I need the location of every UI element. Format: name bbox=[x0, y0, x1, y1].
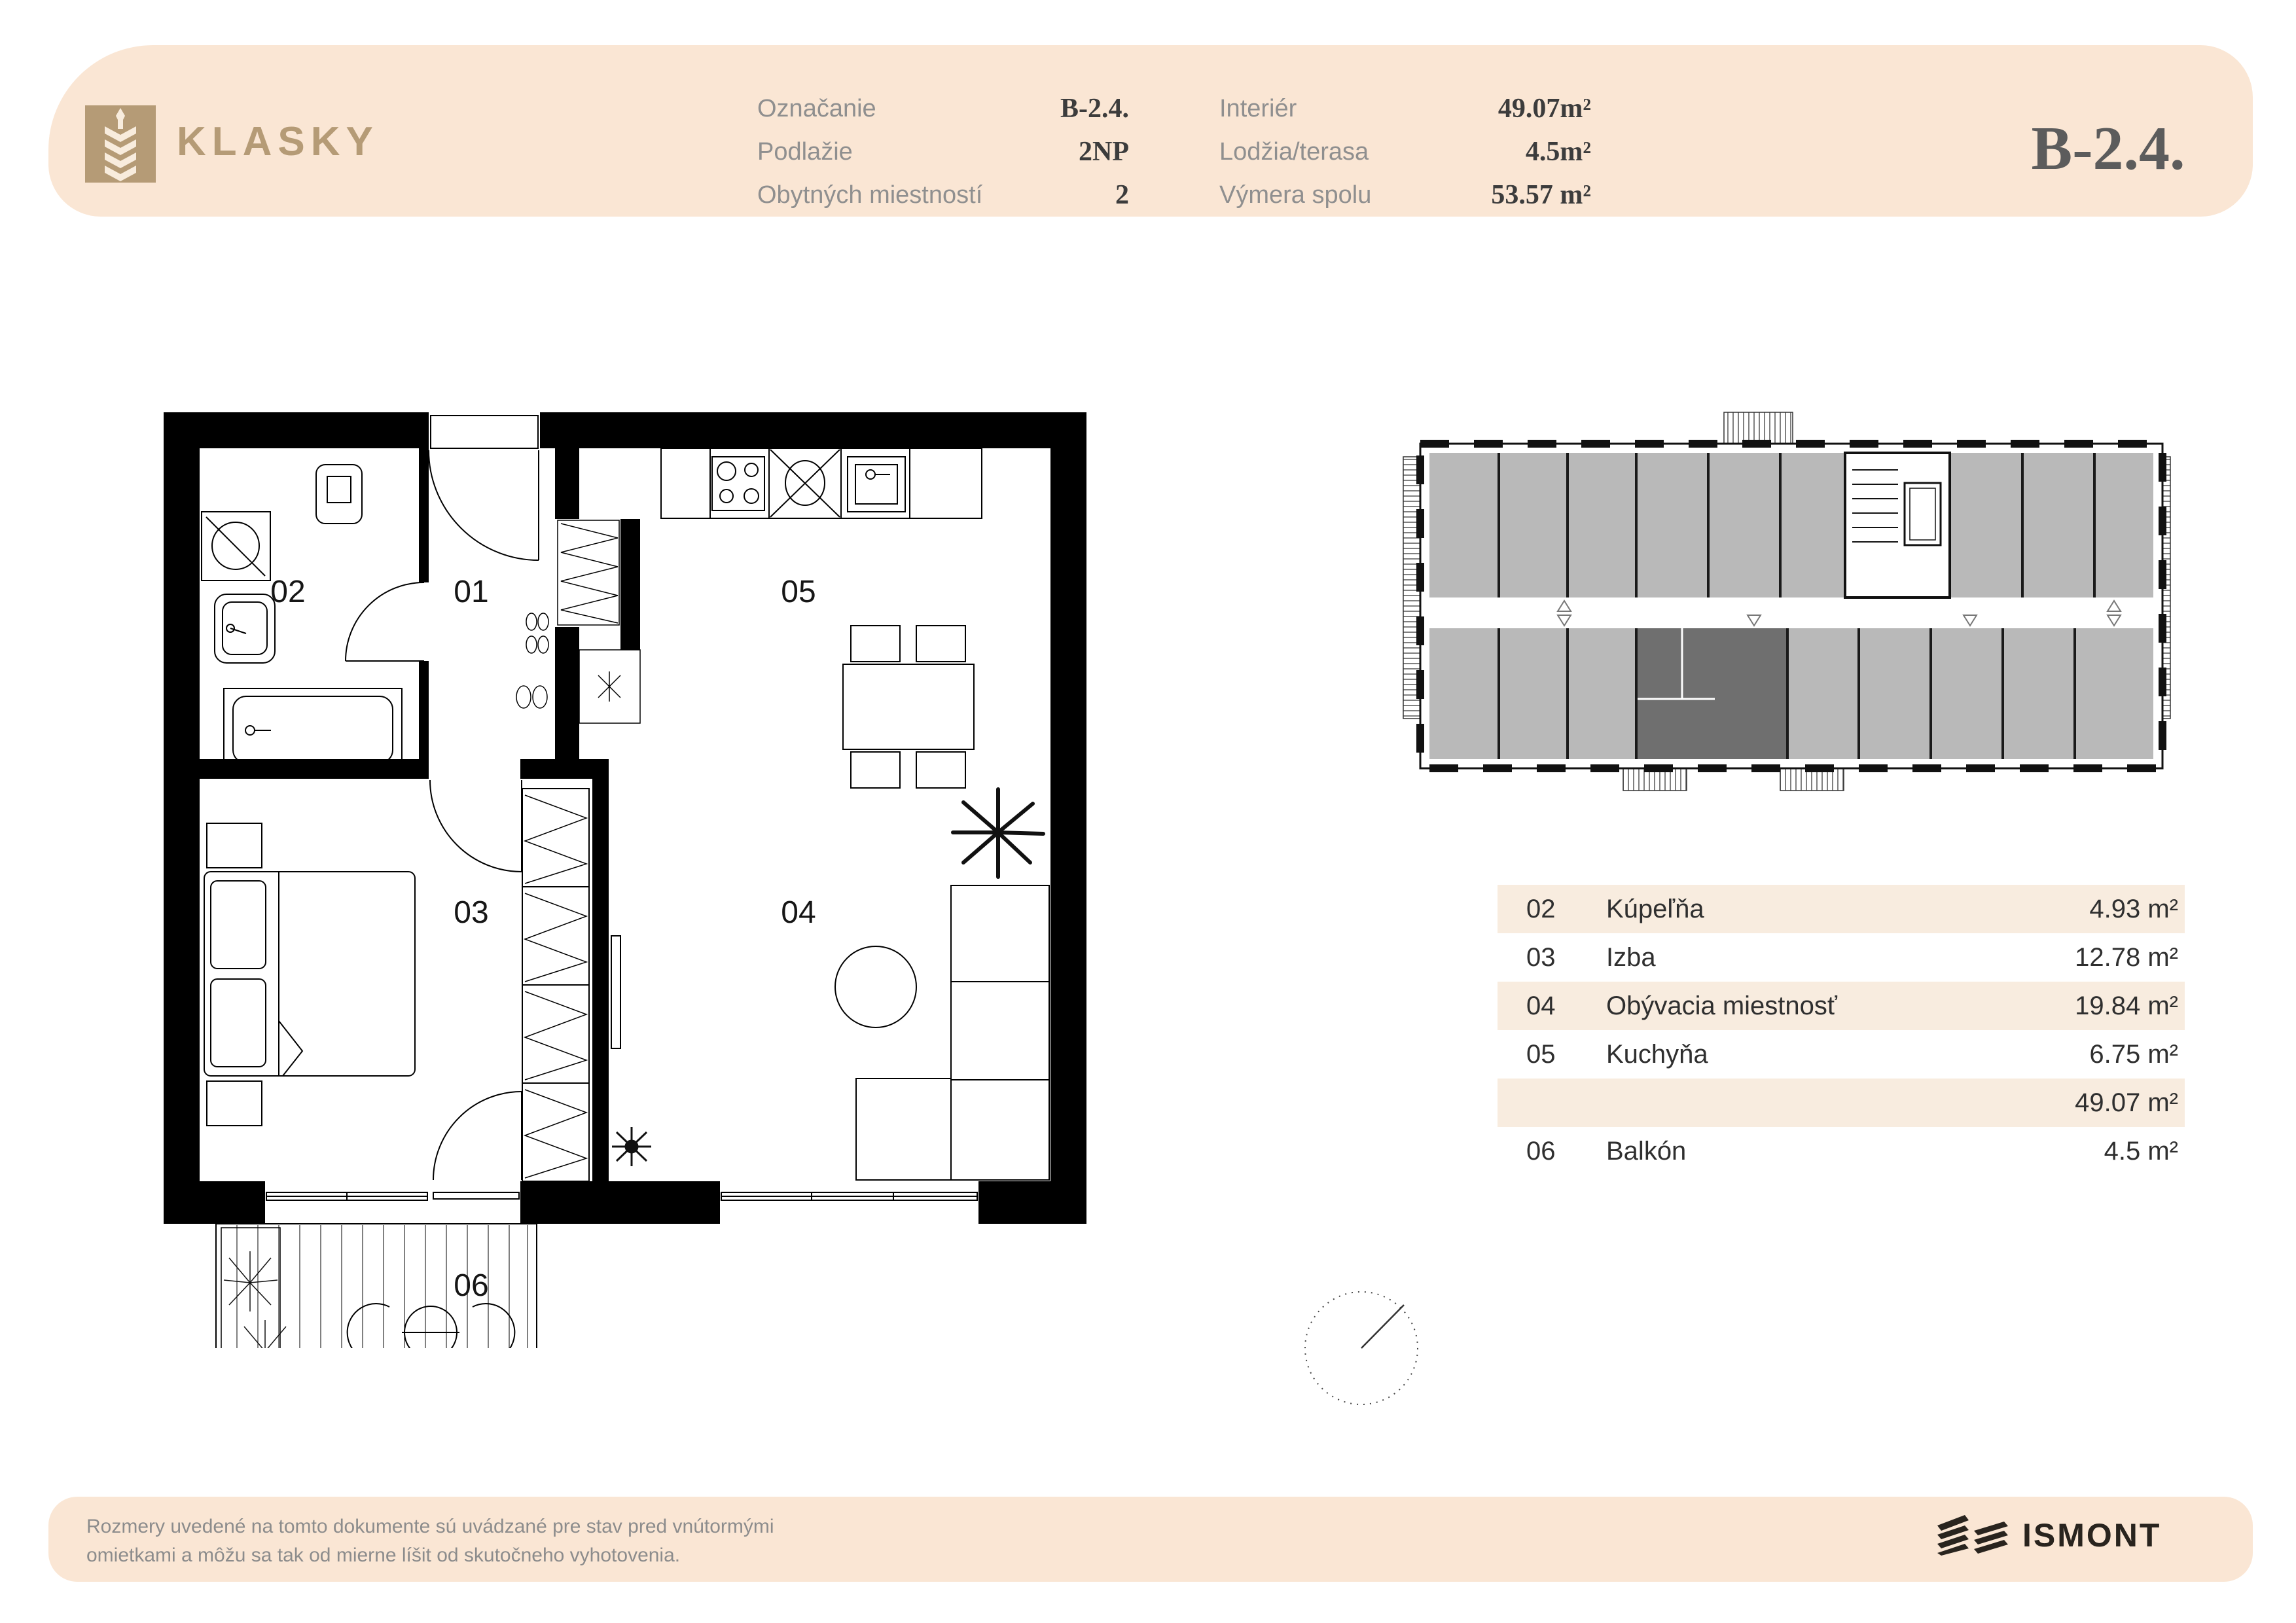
balcony-table-icon bbox=[404, 1306, 457, 1348]
room-area: 19.84 m² bbox=[2075, 991, 2185, 1021]
building-overview bbox=[1401, 404, 2173, 797]
room-label-01: 01 bbox=[454, 575, 488, 609]
compass bbox=[1296, 1281, 1427, 1412]
highlighted-unit bbox=[1636, 628, 1787, 759]
field-podlazie: Podlažie 2NP bbox=[757, 130, 1129, 173]
room-label-02: 02 bbox=[270, 575, 305, 609]
field-value: 53.57 m² bbox=[1491, 179, 1591, 211]
field-label: Označanie bbox=[757, 95, 876, 123]
room-name: Kúpeľňa bbox=[1606, 895, 2089, 924]
klasky-logo bbox=[85, 105, 156, 183]
field-label: Lodžia/terasa bbox=[1219, 138, 1369, 166]
table-row: 04 Obývacia miestnosť 19.84 m² bbox=[1498, 982, 2185, 1030]
wardrobe-hatch bbox=[525, 795, 586, 1178]
field-interier: Interiér 49.07m² bbox=[1219, 87, 1591, 130]
toilet-tank bbox=[327, 476, 351, 503]
page: KLASKY Označanie B-2.4. Podlažie 2NP Oby… bbox=[0, 0, 2296, 1623]
field-value: 49.07m² bbox=[1498, 93, 1591, 124]
coffee-table-icon bbox=[835, 946, 916, 1027]
balcony-chair-icon bbox=[473, 1304, 514, 1348]
room-number: 05 bbox=[1498, 1040, 1606, 1069]
room-area: 4.93 m² bbox=[2089, 895, 2185, 924]
field-oznacanie: Označanie B-2.4. bbox=[757, 87, 1129, 130]
room-number: 04 bbox=[1498, 991, 1606, 1021]
room-label-06: 06 bbox=[454, 1268, 488, 1303]
small-plant-icon bbox=[612, 1127, 651, 1166]
total-interior-area: 49.07 m² bbox=[2075, 1088, 2185, 1118]
tv-icon bbox=[611, 936, 620, 1048]
units-bottom-band bbox=[1429, 628, 2153, 759]
ismont-buildings-icon bbox=[1936, 1514, 2013, 1557]
field-label: Obytných miestností bbox=[757, 181, 982, 209]
plant-icon bbox=[953, 789, 1043, 877]
unit-code: B-2.4. bbox=[1977, 113, 2239, 184]
bathtub-icon bbox=[224, 688, 402, 771]
header-band: KLASKY Označanie B-2.4. Podlažie 2NP Oby… bbox=[48, 45, 2253, 217]
room-area: 12.78 m² bbox=[2075, 943, 2185, 972]
entrance-niche bbox=[431, 416, 538, 448]
room-name: Izba bbox=[1606, 943, 2075, 972]
disclaimer-line1: Rozmery uvedené na tomto dokumente sú uv… bbox=[86, 1512, 774, 1541]
field-vymera-spolu: Výmera spolu 53.57 m² bbox=[1219, 173, 1591, 217]
room-number: 02 bbox=[1498, 895, 1606, 924]
units-top-band bbox=[1429, 453, 2153, 597]
field-label: Podlažie bbox=[757, 138, 853, 166]
room-area-table: 02 Kúpeľňa 4.93 m² 03 Izba 12.78 m² 04 O… bbox=[1498, 885, 2185, 1175]
floorplan-drawing: 02 01 05 03 04 06 bbox=[131, 366, 1113, 1348]
table-row: 06 Balkón 4.5 m² bbox=[1498, 1127, 2185, 1175]
table-row: 05 Kuchyňa 6.75 m² bbox=[1498, 1030, 2185, 1079]
room-label-03: 03 bbox=[454, 895, 488, 930]
room-label-05: 05 bbox=[781, 575, 816, 609]
wheat-icon bbox=[85, 105, 156, 183]
field-value: 2NP bbox=[1079, 136, 1129, 168]
planter-box bbox=[221, 1228, 280, 1348]
brand-name: KLASKY bbox=[177, 118, 379, 165]
stair-core bbox=[1845, 453, 1950, 597]
dining-table-icon bbox=[843, 664, 974, 749]
room-area: 4.5 m² bbox=[2104, 1137, 2185, 1166]
room-label-04: 04 bbox=[781, 895, 816, 930]
room-name: Kuchyňa bbox=[1606, 1040, 2089, 1069]
bedroom-furniture bbox=[204, 789, 589, 1181]
living-room-furniture bbox=[611, 885, 1049, 1180]
sofa-icon bbox=[951, 885, 1049, 1180]
table-row: 03 Izba 12.78 m² bbox=[1498, 933, 2185, 982]
disclaimer-line2: omietkami a môžu sa tak od mierne líšit … bbox=[86, 1541, 774, 1570]
header-fields-left: Označanie B-2.4. Podlažie 2NP Obytných m… bbox=[757, 87, 1129, 217]
apartment-floorplan: 02 01 05 03 04 06 bbox=[131, 366, 1113, 1348]
field-value: 4.5m² bbox=[1526, 136, 1591, 168]
bathroom-fixtures bbox=[202, 465, 402, 771]
nightstand-icon bbox=[207, 1081, 262, 1126]
ismont-logo-text: ISMONT bbox=[2022, 1516, 2161, 1554]
room-name: Obývacia miestnosť bbox=[1606, 991, 2075, 1021]
field-value: 2 bbox=[1115, 179, 1129, 211]
field-lodzia-terasa: Lodžia/terasa 4.5m² bbox=[1219, 130, 1591, 173]
building-overview-drawing bbox=[1401, 404, 2173, 797]
toilet-icon bbox=[316, 465, 362, 524]
ismont-logo: ISMONT bbox=[1936, 1514, 2161, 1557]
nightstand-icon bbox=[207, 823, 262, 868]
field-label: Výmera spolu bbox=[1219, 181, 1371, 209]
field-value: B-2.4. bbox=[1060, 93, 1129, 124]
table-row-total: 49.07 m² bbox=[1498, 1079, 2185, 1127]
room-name: Balkón bbox=[1606, 1137, 2104, 1166]
disclaimer-text: Rozmery uvedené na tomto dokumente sú uv… bbox=[86, 1512, 774, 1570]
room-area: 6.75 m² bbox=[2089, 1040, 2185, 1069]
field-label: Interiér bbox=[1219, 95, 1297, 123]
header-fields-right: Interiér 49.07m² Lodžia/terasa 4.5m² Vým… bbox=[1219, 87, 1591, 217]
kitchen-counter bbox=[661, 448, 982, 788]
compass-icon bbox=[1296, 1281, 1427, 1412]
bed-icon bbox=[204, 872, 415, 1076]
balcony-chair-icon bbox=[348, 1304, 389, 1348]
sink-icon bbox=[215, 594, 275, 663]
room-number: 03 bbox=[1498, 943, 1606, 972]
room-number: 06 bbox=[1498, 1137, 1606, 1166]
field-obytnych-miestnosti: Obytných miestností 2 bbox=[757, 173, 1129, 217]
doors bbox=[346, 450, 539, 1180]
footer-band: Rozmery uvedené na tomto dokumente sú uv… bbox=[48, 1497, 2253, 1582]
walls bbox=[164, 412, 1086, 1224]
table-row: 02 Kúpeľňa 4.93 m² bbox=[1498, 885, 2185, 933]
